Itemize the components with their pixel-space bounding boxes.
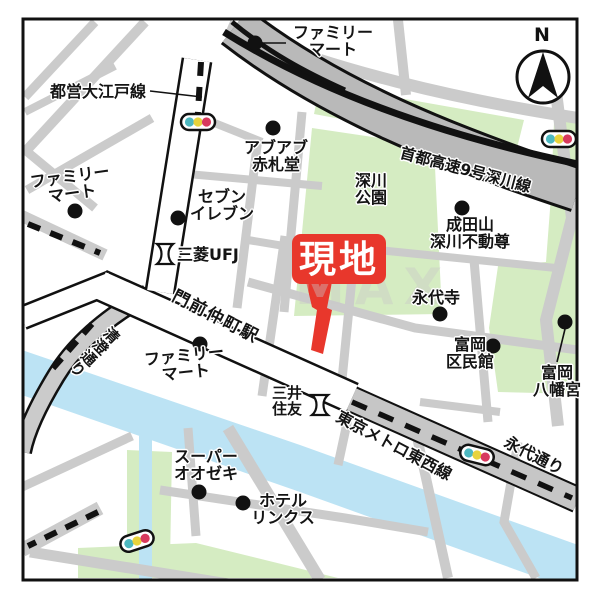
label-super-ozeki: スーパー オオゼキ bbox=[166, 448, 246, 483]
label-naritasan-fudoson: 成田山 深川不動尊 bbox=[424, 216, 516, 251]
poi-dot-naritasan bbox=[455, 201, 470, 216]
bank-icon bbox=[312, 395, 328, 415]
canal bbox=[139, 436, 152, 580]
label-mitsui-sumitomo: 三井 住友 bbox=[272, 385, 302, 417]
poi-dot-familymart-top bbox=[248, 36, 263, 51]
label-eitaiji: 永代寺 bbox=[412, 289, 460, 306]
compass-north-label: N bbox=[534, 24, 550, 46]
poi-dot-ozeki bbox=[192, 485, 207, 500]
label-hotel-links: ホテル リンクス bbox=[243, 492, 323, 527]
poi-dot-abuabu bbox=[266, 121, 281, 136]
traffic-light-icon bbox=[181, 114, 215, 130]
label-mitsubishi-ufj: 三菱UFJ bbox=[177, 246, 239, 263]
label-seven-eleven: セブン イレブン bbox=[186, 188, 258, 223]
north-compass-icon bbox=[517, 51, 569, 103]
traffic-light-icon bbox=[542, 131, 576, 147]
label-tomioka-hachimangu: 富岡 八幡宮 bbox=[517, 364, 597, 399]
label-tomioka-kuminkan: 富岡 区民館 bbox=[430, 336, 510, 371]
poi-dot-familymart-west bbox=[68, 204, 83, 219]
map: MAX N 現地 都営大江戸線 ファミリー マート アブアブ 赤札堂 首都高速9… bbox=[0, 0, 600, 600]
label-fukagawa-park: 深川 公園 bbox=[355, 172, 387, 207]
poi-dot-seven-eleven bbox=[171, 211, 186, 226]
label-familymart-top: ファミリー マート bbox=[283, 24, 383, 59]
poi-dot-hachimangu bbox=[558, 315, 573, 330]
site-label-box: 現地 bbox=[292, 234, 386, 284]
label-abuabu-akafudado: アブアブ 赤札堂 bbox=[236, 139, 316, 174]
label-toei-oedo-line: 都営大江戸線 bbox=[50, 83, 146, 100]
